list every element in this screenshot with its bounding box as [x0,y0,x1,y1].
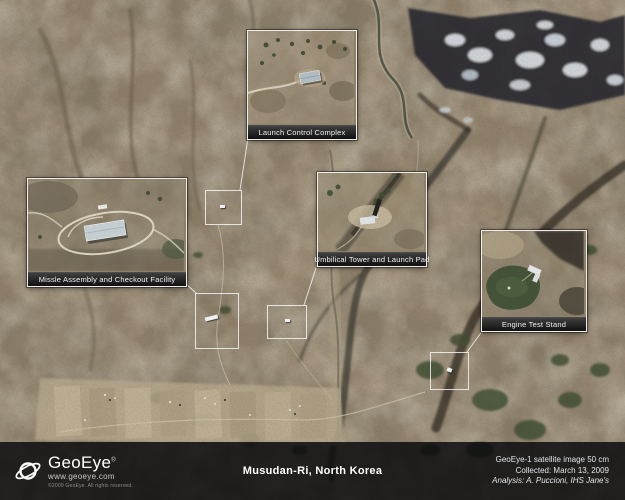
missile-assembly-marker-box [195,293,239,349]
inset-label: Umbilical Tower and Launch Pad [318,252,426,266]
launch-control-complex-marker-box [205,190,242,225]
trademark-symbol: ® [111,457,116,463]
inset-launch-control-complex: Launch Control Complex [247,30,357,140]
inset-label: Engine Test Stand [482,317,586,331]
info-bar: GeoEye® www.geoeye.com ©2009 GeoEye. All… [0,442,625,500]
brand-copyright: ©2009 GeoEye. All rights reserved. [48,484,133,489]
building-speck [285,319,290,322]
umbilical-tower-marker-box [267,305,307,339]
geoeye-logo-icon [14,457,42,485]
inset-ets-image [482,231,584,316]
inset-ma-image [28,179,184,271]
building-speck [220,205,225,208]
building-speck [205,314,219,321]
inset-ut-image [318,173,424,251]
image-credits: GeoEye-1 satellite image 50 cm Collected… [492,455,609,487]
brand-name: GeoEye® [48,454,133,471]
inset-label: Missle Assembly and Checkout Facility [28,272,186,286]
image-title: Musudan-Ri, North Korea [243,465,383,477]
credit-source: GeoEye-1 satellite image 50 cm [492,455,609,466]
inset-missile-assembly-facility: Missle Assembly and Checkout Facility [27,178,187,287]
brand-website: www.geoeye.com [48,473,133,481]
inset-engine-test-stand: Engine Test Stand [481,230,587,332]
brand-text: GeoEye® www.geoeye.com ©2009 GeoEye. All… [48,454,133,489]
inset-lcc-image [248,31,354,124]
geoeye-brand: GeoEye® www.geoeye.com ©2009 GeoEye. All… [14,454,133,489]
inset-umbilical-tower-launch-pad: Umbilical Tower and Launch Pad [317,172,427,267]
credit-collected: Collected: March 13, 2009 [492,466,609,477]
engine-test-stand-marker-box [430,352,469,390]
satellite-image-view: Launch Control Complex Missle Assembly a… [0,0,625,500]
credit-analysis: Analysis: A. Puccioni, IHS Jane's [492,476,609,487]
inset-label: Launch Control Complex [248,125,356,139]
building-speck [446,367,452,372]
